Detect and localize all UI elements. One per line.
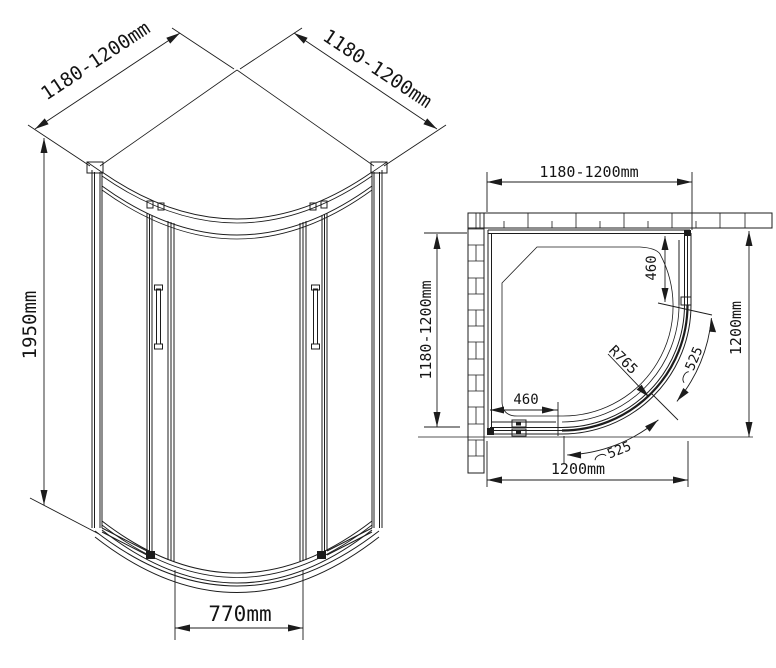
dim-plan-arc-right: 525 bbox=[682, 344, 706, 373]
plan-dim-460-right: 460 bbox=[644, 236, 712, 315]
arc-length-symbol bbox=[681, 371, 689, 383]
front-top-dimensions: 1180-1200mm 1180-1200mm bbox=[28, 17, 446, 166]
panel-bottom-edges bbox=[102, 528, 372, 555]
extension-lines bbox=[28, 28, 446, 166]
dim-plan-panel-bottom: 460 bbox=[513, 392, 538, 408]
left-post bbox=[92, 170, 102, 528]
arrowhead bbox=[41, 490, 48, 505]
door-guide-bottom-right bbox=[317, 551, 326, 559]
right-post bbox=[372, 170, 382, 528]
technical-drawing-page: 1180-1200mm 1180-1200mm 1950mm bbox=[0, 0, 776, 668]
fixed-panel-bottom-plan bbox=[488, 422, 562, 434]
fixed-panel-right-plan bbox=[679, 233, 691, 305]
arrowhead bbox=[423, 118, 437, 129]
panel-end-cap-right bbox=[681, 297, 691, 305]
dim-plan-depth-right: 1200mm bbox=[727, 301, 745, 355]
arrowhead bbox=[41, 138, 48, 153]
fixed-panel-stile-left bbox=[147, 213, 152, 553]
wall-left bbox=[468, 213, 484, 473]
wall-cap-right bbox=[371, 162, 387, 173]
frame-left bbox=[488, 230, 492, 433]
front-height-dimension: 1950mm bbox=[19, 138, 99, 534]
dim-plan-arc-bottom: 525 bbox=[605, 438, 634, 462]
plan-dim-bottom: 1200mm bbox=[487, 441, 688, 487]
dim-plan-depth-left: 1180-1200mm bbox=[417, 280, 435, 379]
fixed-panel-stile-right bbox=[322, 213, 327, 553]
wall-bracket-top-right bbox=[684, 230, 691, 236]
enclosure-3d bbox=[87, 70, 387, 593]
dim-plan-width-bottom: 1200mm bbox=[551, 460, 605, 478]
wall-cap-left bbox=[87, 162, 103, 173]
arrowhead bbox=[288, 625, 303, 632]
frame-top bbox=[488, 230, 690, 234]
door-stile-left bbox=[168, 221, 174, 562]
dim-plan-radius: R765 bbox=[605, 343, 640, 378]
plan-dim-top: 1180-1200mm bbox=[487, 163, 692, 230]
extension-line bbox=[30, 498, 99, 534]
dim-plan-panel-right: 460 bbox=[644, 255, 660, 280]
back-top-edges bbox=[100, 70, 374, 166]
arrowhead bbox=[294, 33, 308, 44]
dim-front-height: 1950mm bbox=[19, 291, 41, 360]
dim-front-opening: 770mm bbox=[208, 602, 271, 626]
door-stile-right bbox=[300, 221, 306, 562]
bottom-track bbox=[102, 521, 372, 583]
front-view: 1180-1200mm 1180-1200mm 1950mm bbox=[19, 17, 446, 640]
plan-dim-left: 1180-1200mm bbox=[417, 233, 467, 427]
plan-dimensions: 1180-1200mm 1180-1200mm 1200mm bbox=[417, 163, 753, 487]
arrowhead bbox=[166, 33, 180, 44]
dim-front-width-left: 1180-1200mm bbox=[37, 17, 154, 105]
arrowhead bbox=[35, 118, 49, 129]
wall-bracket-bottom-left bbox=[487, 428, 494, 435]
arc-label-right: 525 bbox=[677, 344, 707, 386]
door-handle-right bbox=[312, 285, 320, 349]
shower-enclosure-drawing: 1180-1200mm 1180-1200mm 1950mm bbox=[0, 0, 776, 668]
walls bbox=[418, 213, 772, 473]
plan-dim-right: 1200mm bbox=[727, 231, 753, 437]
door-handle-left bbox=[155, 285, 163, 349]
plan-view: 1180-1200mm 1180-1200mm 1200mm bbox=[417, 163, 772, 487]
wall-top bbox=[468, 213, 772, 228]
dim-front-width-right: 1180-1200mm bbox=[319, 25, 436, 113]
door-guide-bottom-left bbox=[146, 551, 155, 559]
arrowhead bbox=[175, 625, 190, 632]
plan-dim-radius: R765 bbox=[605, 343, 649, 397]
dim-plan-width-top: 1180-1200mm bbox=[539, 163, 638, 181]
top-rail bbox=[102, 172, 372, 239]
